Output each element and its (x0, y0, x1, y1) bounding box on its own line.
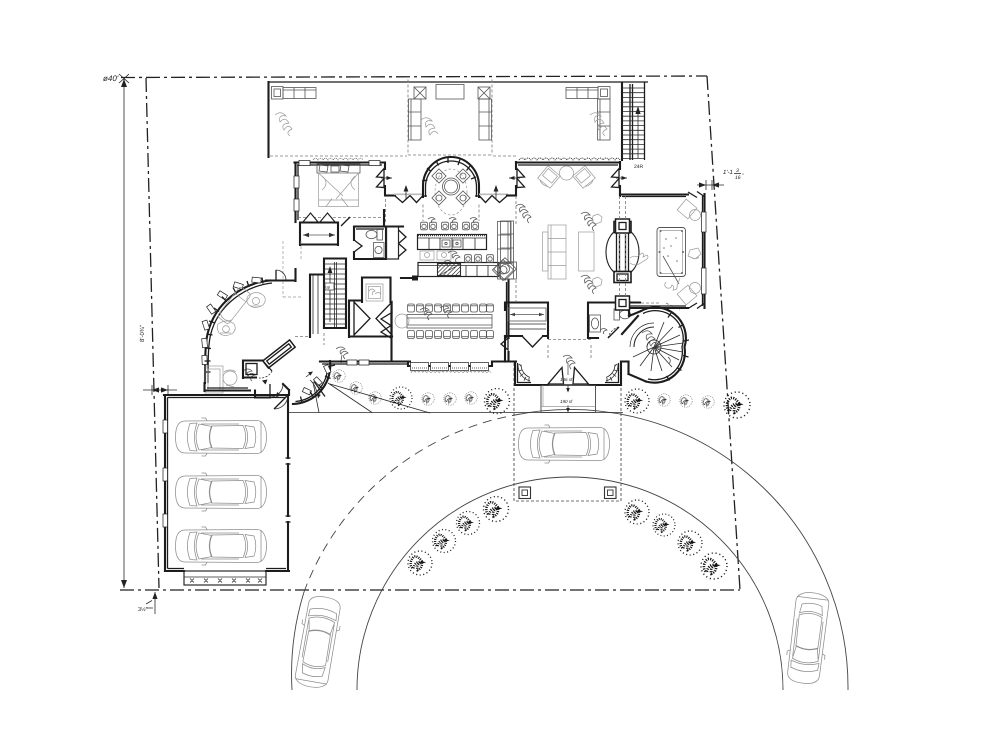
svg-text:3½": 3½" (138, 607, 148, 613)
svg-text:186 sf: 186 sf (560, 377, 573, 382)
svg-text:16: 16 (735, 175, 741, 181)
svg-text:24R: 24R (634, 164, 644, 170)
svg-text:8'-0¾": 8'-0¾" (139, 325, 146, 342)
svg-text:": " (742, 173, 744, 179)
svg-text:190 sf: 190 sf (560, 399, 573, 404)
svg-text:ø40': ø40' (103, 74, 119, 83)
svg-text:1'-1: 1'-1 (723, 169, 733, 176)
svg-text:up: up (326, 285, 331, 290)
